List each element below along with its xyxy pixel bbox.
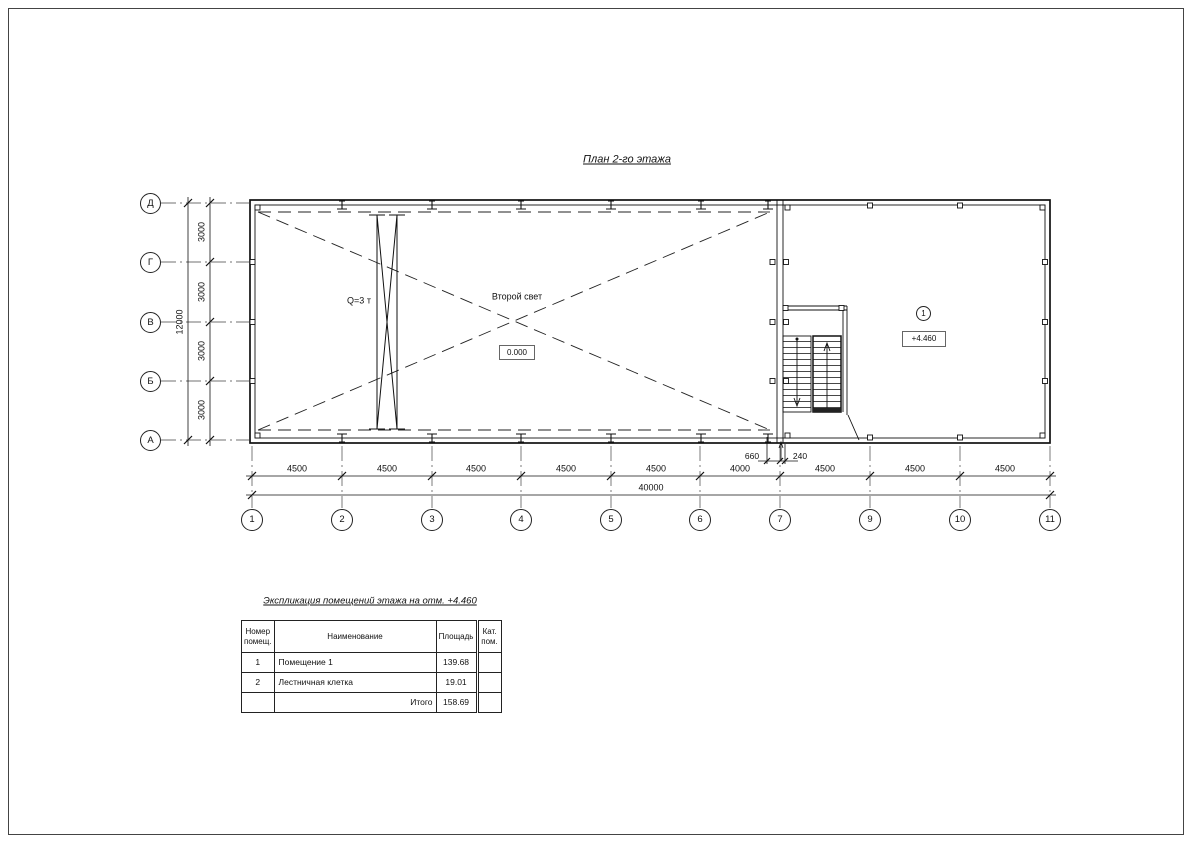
drawing-title: План 2-го этажа bbox=[583, 155, 671, 166]
column-markers bbox=[250, 200, 1048, 443]
second-light-label: Второй свет bbox=[492, 293, 542, 302]
dim-segment: 4500 bbox=[815, 465, 835, 474]
drawing-sheet: План 2-го этажа Q=3 т Второй свет 0.000 … bbox=[0, 0, 1191, 842]
dim-door-offset: 660 bbox=[745, 452, 759, 461]
cell-area: 139.68 bbox=[436, 653, 477, 673]
dim-segment: 4500 bbox=[905, 465, 925, 474]
axis-bubble-v: В bbox=[140, 312, 161, 333]
axis-grid-lines bbox=[161, 203, 1050, 508]
axis-bubble-b: Б bbox=[140, 371, 161, 392]
staircase bbox=[783, 306, 847, 415]
dim-segment: 4000 bbox=[730, 465, 750, 474]
table-row: 2 Лестничная клетка 19.01 bbox=[242, 673, 502, 693]
axis-bubble-7: 7 bbox=[769, 509, 791, 531]
building-walls bbox=[250, 200, 1050, 443]
axis-bubble-d: Д bbox=[140, 193, 161, 214]
axis-bubble-6: 6 bbox=[689, 509, 711, 531]
cell-number: 2 bbox=[242, 673, 275, 693]
dim-segment: 4500 bbox=[377, 465, 397, 474]
dim-total-width: 40000 bbox=[638, 484, 663, 493]
dim-segment: 4500 bbox=[287, 465, 307, 474]
axis-bubble-4: 4 bbox=[510, 509, 532, 531]
axis-bubble-10: 10 bbox=[949, 509, 971, 531]
dim-total-height: 12000 bbox=[176, 309, 185, 334]
dim-segment: 3000 bbox=[198, 282, 207, 302]
dim-segment: 3000 bbox=[198, 400, 207, 420]
total-label: Итого bbox=[274, 693, 436, 713]
dim-segment: 4500 bbox=[466, 465, 486, 474]
cell-cat bbox=[477, 673, 501, 693]
header-number: Номер помещ. bbox=[242, 621, 275, 653]
total-area: 158.69 bbox=[436, 693, 477, 713]
cell-cat bbox=[477, 653, 501, 673]
dim-segment: 3000 bbox=[198, 222, 207, 242]
table-header-row: Номер помещ. Наименование Площадь Кат. п… bbox=[242, 621, 502, 653]
cell-cat bbox=[477, 693, 501, 713]
level-mark-4460: +4.460 bbox=[902, 331, 946, 347]
axis-bubble-11: 11 bbox=[1039, 509, 1061, 531]
floor-opening-dashed bbox=[258, 212, 770, 430]
dim-segment: 3000 bbox=[198, 341, 207, 361]
cell-name: Лестничная клетка bbox=[274, 673, 436, 693]
door-leaf bbox=[848, 415, 859, 440]
axis-bubble-g: Г bbox=[140, 252, 161, 273]
axis-bubble-5: 5 bbox=[600, 509, 622, 531]
dimension-ticks bbox=[184, 199, 1054, 499]
floor-plan-drawing bbox=[0, 0, 1191, 842]
cell-number bbox=[242, 693, 275, 713]
dim-segment: 4500 bbox=[995, 465, 1015, 474]
explication-table: Номер помещ. Наименование Площадь Кат. п… bbox=[241, 620, 502, 713]
level-mark-0000: 0.000 bbox=[499, 345, 535, 360]
header-name: Наименование bbox=[274, 621, 436, 653]
axis-bubble-1: 1 bbox=[241, 509, 263, 531]
cell-number: 1 bbox=[242, 653, 275, 673]
dim-wall-thickness: 240 bbox=[793, 452, 807, 461]
dim-segment: 4500 bbox=[556, 465, 576, 474]
header-area: Площадь bbox=[436, 621, 477, 653]
explication-title: Экспликация помещений этажа на отм. +4.4… bbox=[263, 596, 476, 607]
cell-area: 19.01 bbox=[436, 673, 477, 693]
axis-bubble-9: 9 bbox=[859, 509, 881, 531]
table-total-row: Итого 158.69 bbox=[242, 693, 502, 713]
crane-capacity-label: Q=3 т bbox=[347, 297, 371, 306]
crane-beam-symbol bbox=[369, 215, 405, 429]
room-number-bubble: 1 bbox=[916, 306, 931, 321]
table-row: 1 Помещение 1 139.68 bbox=[242, 653, 502, 673]
dim-segment: 4500 bbox=[646, 465, 666, 474]
axis-bubble-a: А bbox=[140, 430, 161, 451]
cell-name: Помещение 1 bbox=[274, 653, 436, 673]
axis-bubble-2: 2 bbox=[331, 509, 353, 531]
axis-bubble-3: 3 bbox=[421, 509, 443, 531]
header-cat: Кат. пом. bbox=[477, 621, 501, 653]
